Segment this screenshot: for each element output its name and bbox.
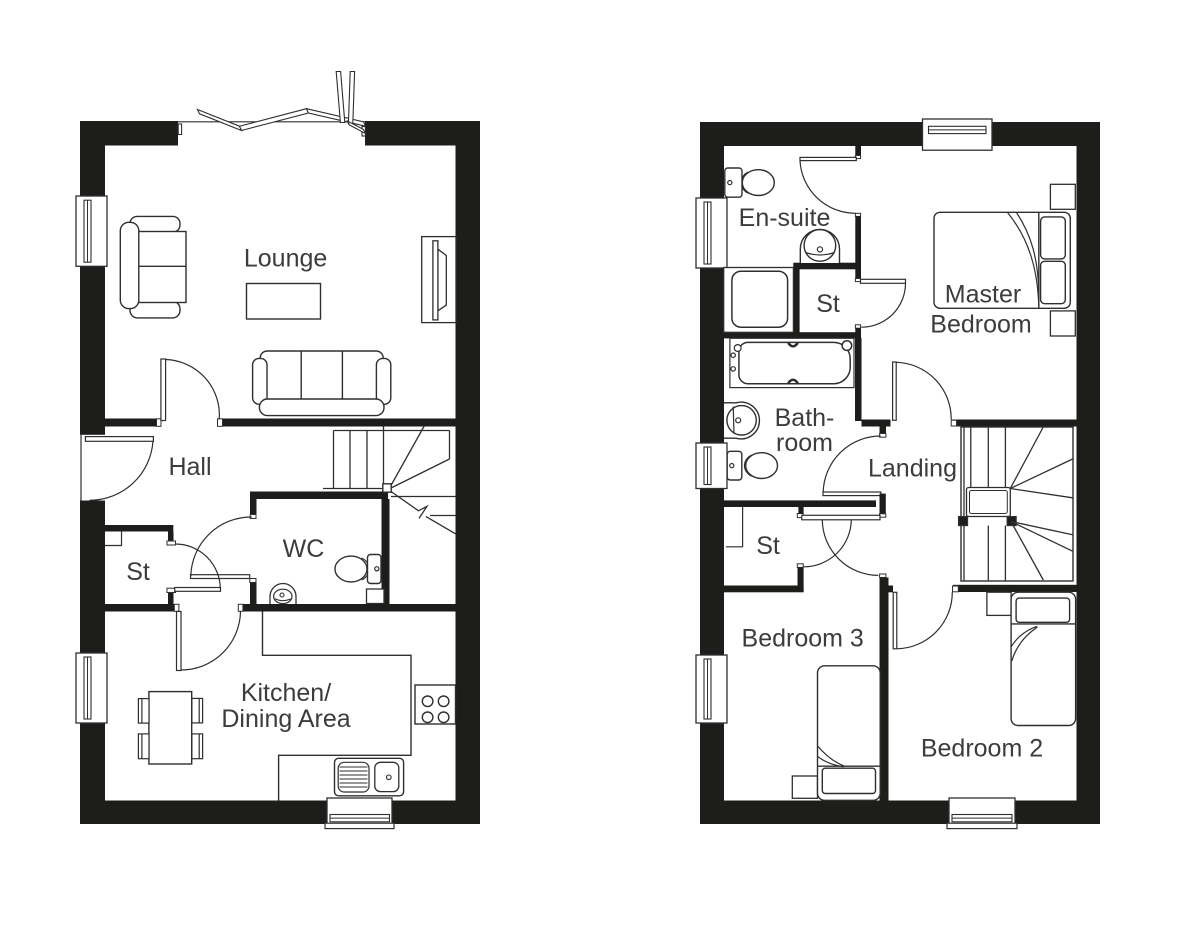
svg-text:St: St (756, 532, 780, 560)
svg-text:Dining Area: Dining Area (221, 705, 350, 733)
svg-text:Master: Master (945, 280, 1021, 308)
svg-text:Bedroom 3: Bedroom 3 (742, 624, 864, 652)
svg-text:room: room (776, 429, 833, 457)
svg-text:Hall: Hall (168, 453, 211, 481)
svg-text:Landing: Landing (868, 454, 957, 482)
svg-text:Bedroom: Bedroom (930, 311, 1031, 339)
svg-text:St: St (816, 290, 840, 318)
svg-text:En-suite: En-suite (739, 204, 831, 232)
svg-text:Bedroom 2: Bedroom 2 (921, 734, 1043, 762)
svg-text:WC: WC (283, 535, 325, 563)
svg-text:St: St (126, 558, 150, 586)
svg-text:Bath-: Bath- (775, 404, 835, 432)
svg-text:Lounge: Lounge (244, 244, 327, 272)
svg-text:Kitchen/: Kitchen/ (241, 679, 331, 707)
